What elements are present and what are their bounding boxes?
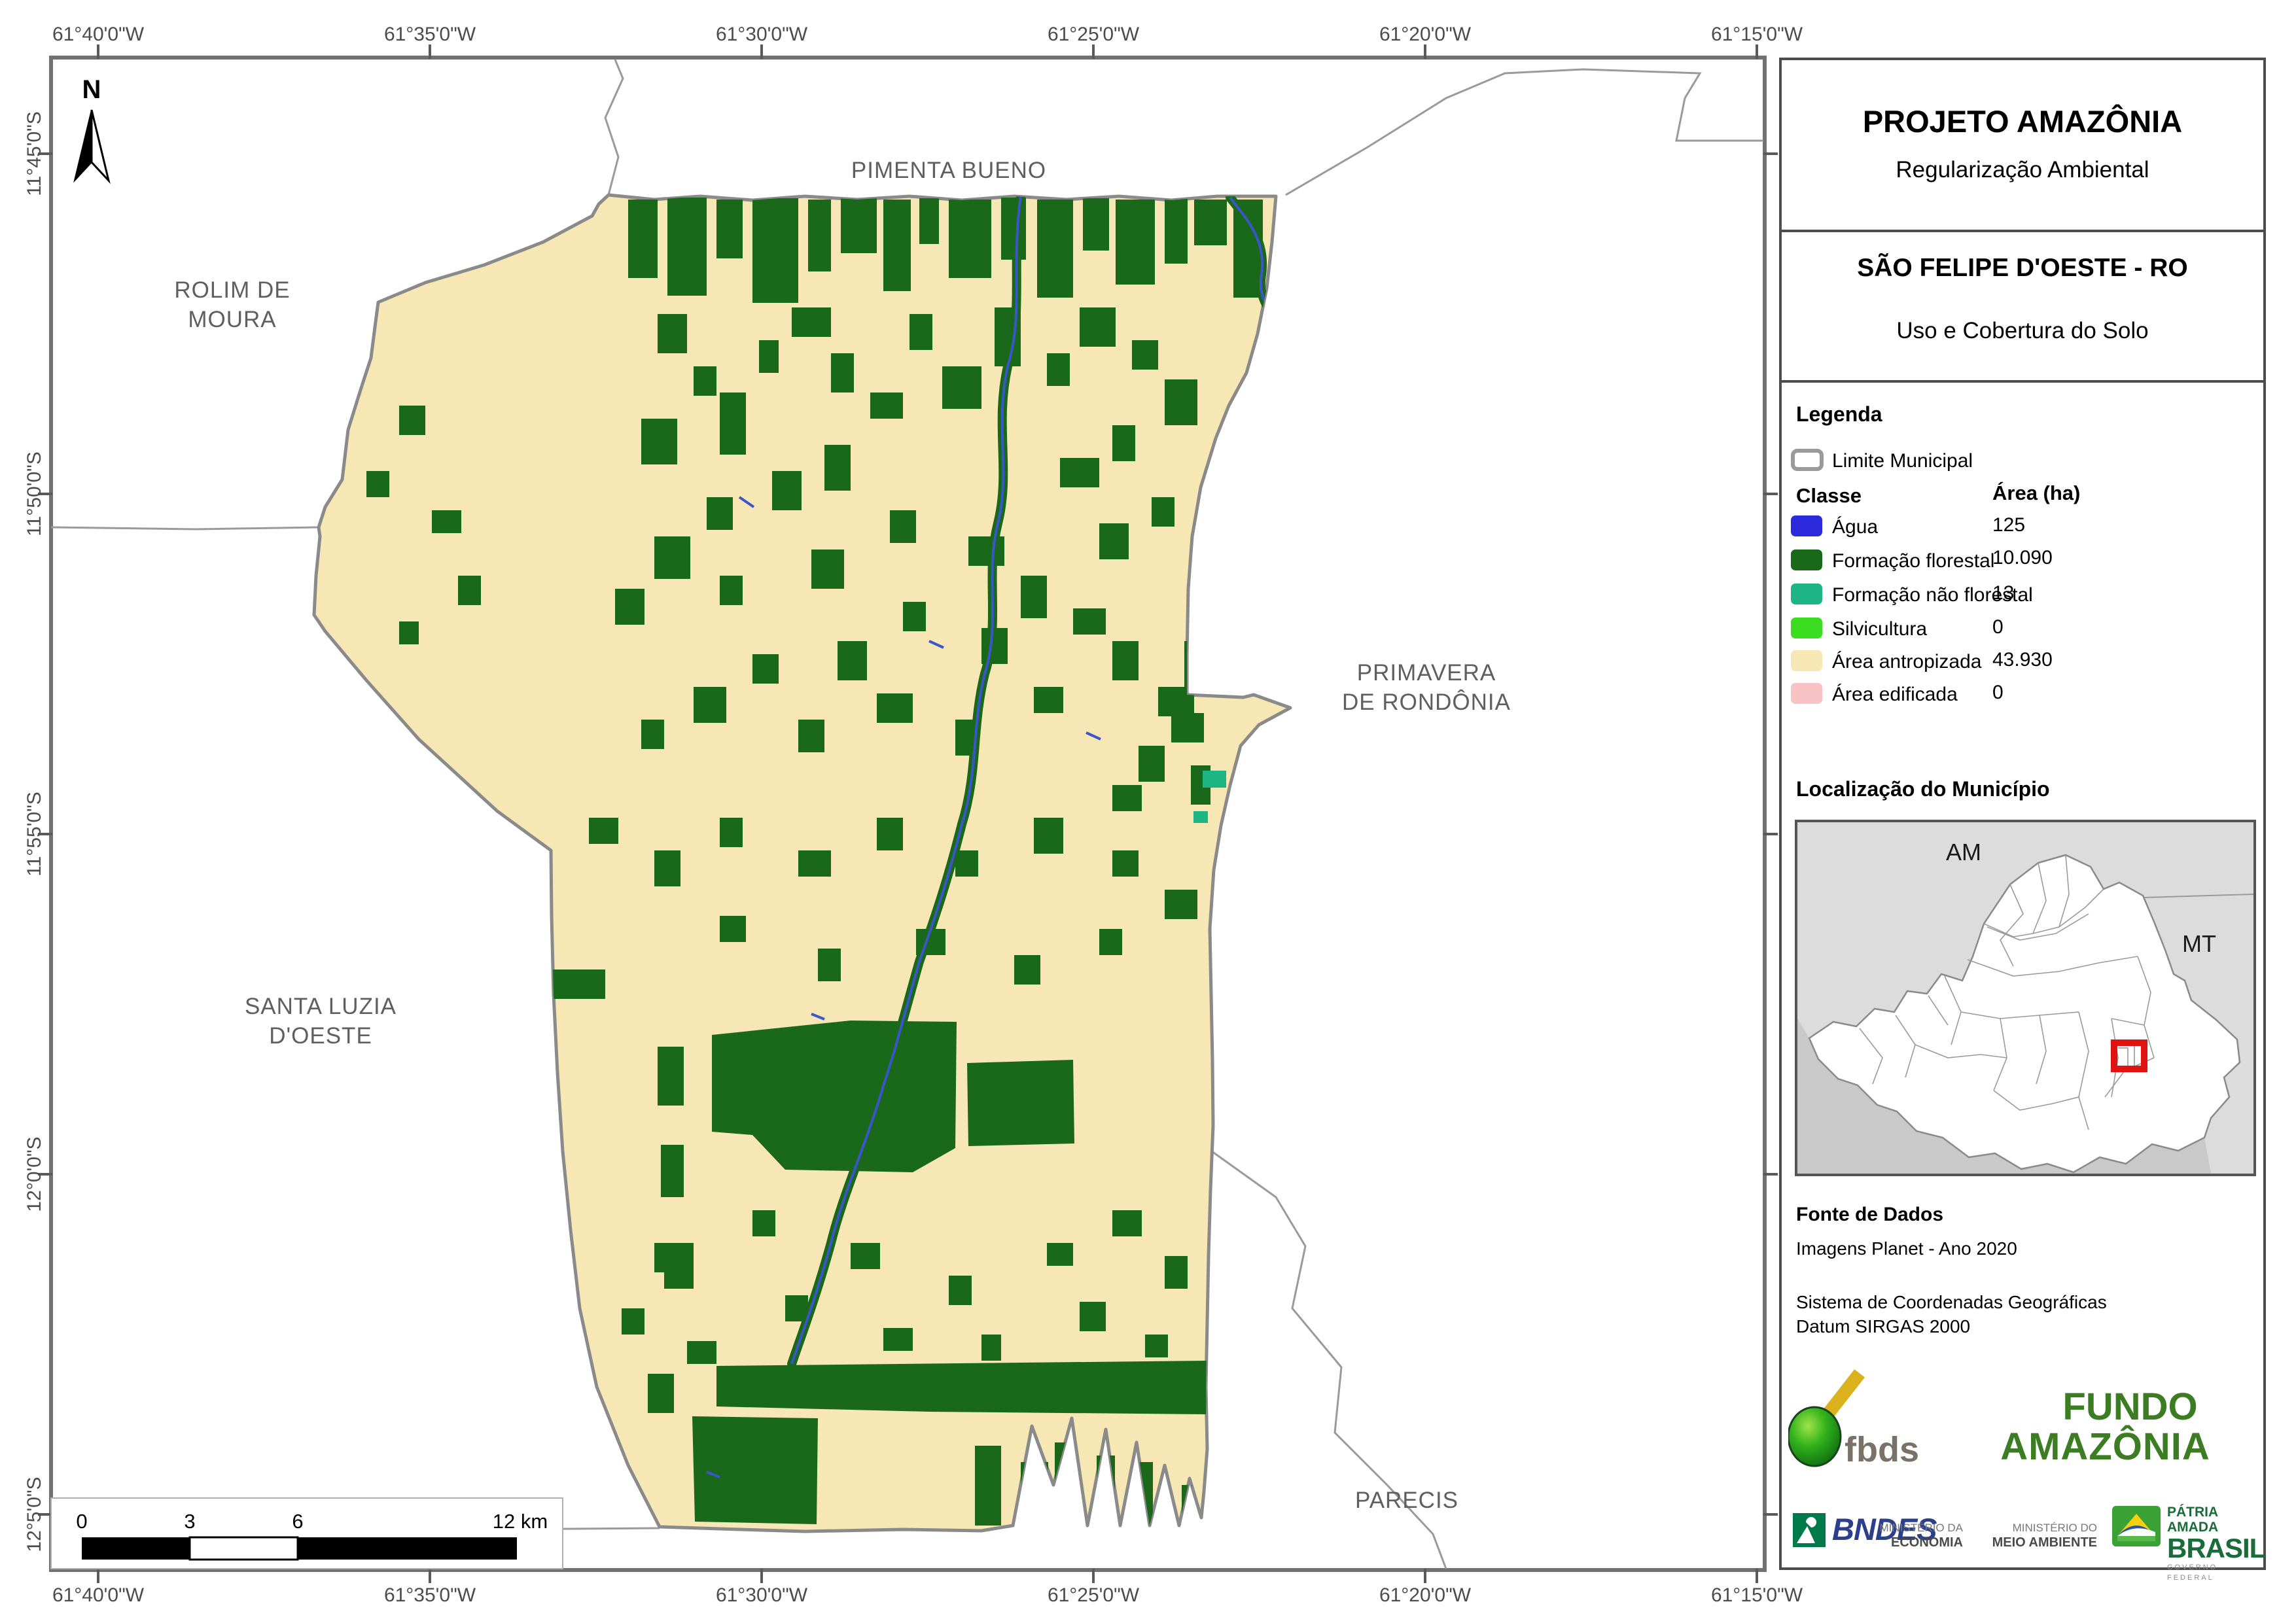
lon-label: 61°25'0"W [1048, 24, 1140, 45]
limite-municipal-swatch [1791, 449, 1824, 471]
scale-bar: 0 3 6 12 km [51, 1498, 563, 1569]
location-heading: Localização do Município [1796, 777, 2050, 801]
lon-label: 61°20'0"W [1379, 1584, 1472, 1606]
fundo-amazonia-line2: AMAZÔNIA [1960, 1427, 2251, 1467]
legend-area-area-antropizada: 43.930 [1992, 649, 2053, 671]
inset-label-mt: MT [2182, 930, 2216, 957]
lat-labels-left: 11°45'0"S 11°50'0"S 11°55'0"S 12°0'0"S 1… [24, 111, 45, 1552]
lon-labels-top: 61°40'0"W 61°35'0"W 61°30'0"W 61°25'0"W … [52, 24, 1803, 45]
lon-label: 61°35'0"W [384, 1584, 476, 1606]
legend-label-agua: Água [1832, 516, 1878, 538]
legend-swatch-agua [1791, 515, 1822, 536]
legend-swatch-silvicultura [1791, 618, 1822, 638]
lon-label: 61°30'0"W [716, 24, 808, 45]
lon-label: 61°20'0"W [1379, 24, 1472, 45]
scale-label-3: 3 [184, 1510, 195, 1533]
patria-amada-line: PÁTRIA AMADA [2167, 1505, 2255, 1535]
fbds-wordmark: fbds [1845, 1430, 1919, 1469]
panel-title-box [1779, 58, 2266, 232]
governo-federal-line: GOVERNO FEDERAL [2167, 1562, 2255, 1583]
legend-area-agua: 125 [1992, 514, 2025, 536]
legend-area-area-edificada: 0 [1992, 682, 2004, 704]
source-line3: Datum SIRGAS 2000 [1796, 1316, 1970, 1337]
neighbor-label-primavera-line2: DE RONDÔNIA [1342, 689, 1511, 715]
legend-swatch-formacao-florestal [1791, 550, 1822, 570]
legend-label-formacao-florestal: Formação florestal [1832, 550, 1994, 572]
lon-labels-bottom: 61°40'0"W 61°35'0"W 61°30'0"W 61°25'0"W … [52, 1584, 1803, 1606]
lat-label: 11°50'0"S [24, 451, 45, 536]
source-line2: Sistema de Coordenadas Geográficas [1796, 1292, 2107, 1313]
location-inset-map: AM MT [1795, 820, 2256, 1176]
project-title: PROJETO AMAZÔNIA [1782, 103, 2263, 139]
lon-label: 61°35'0"W [384, 24, 476, 45]
source-line1: Imagens Planet - Ano 2020 [1796, 1238, 2017, 1259]
ministerio-economia-line2: ECONOMIA [1852, 1535, 1963, 1550]
ministerio-economia-line1: MINISTÉRIO DA [1852, 1521, 1963, 1535]
legend-col-classe: Classe [1796, 484, 1862, 508]
map-layout: 61°40'0"W 61°35'0"W 61°30'0"W 61°25'0"W … [0, 0, 2296, 1623]
legend-swatch-area-antropizada [1791, 650, 1822, 671]
scale-label-0: 0 [76, 1510, 87, 1533]
legend-label-area-edificada: Área edificada [1832, 684, 1958, 706]
neighbor-label-santa-luzia-line2: D'OESTE [269, 1023, 372, 1049]
legend-area-formacao-nao-florestal: 13 [1992, 582, 2014, 604]
legend-swatch-area-edificada [1791, 683, 1822, 704]
neighbor-label-primavera-line1: PRIMAVERA [1357, 660, 1496, 686]
brasil-flag-icon [2112, 1506, 2161, 1546]
lat-label: 12°5'0"S [24, 1476, 45, 1552]
panel-subtitle-box [1779, 230, 2266, 383]
source-heading: Fonte de Dados [1796, 1204, 1943, 1226]
ministerio-meio-ambiente-logo: MINISTÉRIO DO MEIO AMBIENTE [1986, 1521, 2097, 1550]
lon-label: 61°30'0"W [716, 1584, 808, 1606]
lat-label: 12°0'0"S [24, 1136, 45, 1212]
lon-label: 61°40'0"W [52, 24, 145, 45]
lat-label: 11°45'0"S [24, 111, 45, 196]
neighbor-label-rolim-line2: MOURA [188, 307, 276, 332]
limite-municipal-label: Limite Municipal [1832, 450, 1973, 472]
patria-amada-brasil-logo: PÁTRIA AMADA BRASIL GOVERNO FEDERAL [2167, 1505, 2255, 1583]
scale-label-6b: 6 [292, 1510, 303, 1533]
legend-label-silvicultura: Silvicultura [1832, 618, 1927, 640]
lon-label: 61°25'0"W [1048, 1584, 1140, 1606]
fbds-logo: fbds [1788, 1362, 1939, 1473]
fbds-sphere-icon [1788, 1407, 1841, 1466]
fundo-amazonia-line1: FUNDO [1985, 1387, 2276, 1427]
project-subtitle: Regularização Ambiental [1782, 157, 2263, 183]
neighbor-label-rolim-line1: ROLIM DE [174, 277, 290, 303]
legend-label-area-antropizada: Área antropizada [1832, 651, 1982, 673]
ministerio-economia-logo: MINISTÉRIO DA ECONOMIA [1852, 1521, 1963, 1550]
scale-label-12km: 12 km [493, 1510, 548, 1533]
legend-heading: Legenda [1796, 402, 1882, 427]
legend-area-formacao-florestal: 10.090 [1992, 547, 2053, 569]
neighbor-label-pimenta-bueno: PIMENTA BUENO [851, 158, 1046, 183]
legend-col-area: Área (ha) [1992, 481, 2080, 505]
fundo-amazonia-logo: FUNDO AMAZÔNIA [1960, 1387, 2251, 1467]
inset-label-am: AM [1946, 839, 1981, 865]
legend-swatch-formacao-nao-florestal [1791, 584, 1822, 604]
lat-label: 11°55'0"S [24, 792, 45, 877]
ministerio-meio-ambiente-line2: MEIO AMBIENTE [1986, 1535, 2097, 1550]
bndes-icon [1793, 1513, 1826, 1547]
map-theme-title: Uso e Cobertura do Solo [1782, 318, 2263, 344]
neighbor-label-santa-luzia-line1: SANTA LUZIA [245, 994, 397, 1019]
municipality-title: SÃO FELIPE D'OESTE - RO [1782, 254, 2263, 283]
brasil-line: BRASIL [2167, 1535, 2255, 1562]
neighbor-label-parecis: PARECIS [1355, 1488, 1458, 1513]
ministerio-meio-ambiente-line1: MINISTÉRIO DO [1986, 1521, 2097, 1535]
lon-label: 61°15'0"W [1711, 1584, 1803, 1606]
map-canvas: 61°40'0"W 61°35'0"W 61°30'0"W 61°25'0"W … [0, 0, 1806, 1623]
legend-area-silvicultura: 0 [1992, 616, 2004, 638]
lon-label: 61°40'0"W [52, 1584, 145, 1606]
north-label: N [82, 75, 101, 104]
lon-label: 61°15'0"W [1711, 24, 1803, 45]
